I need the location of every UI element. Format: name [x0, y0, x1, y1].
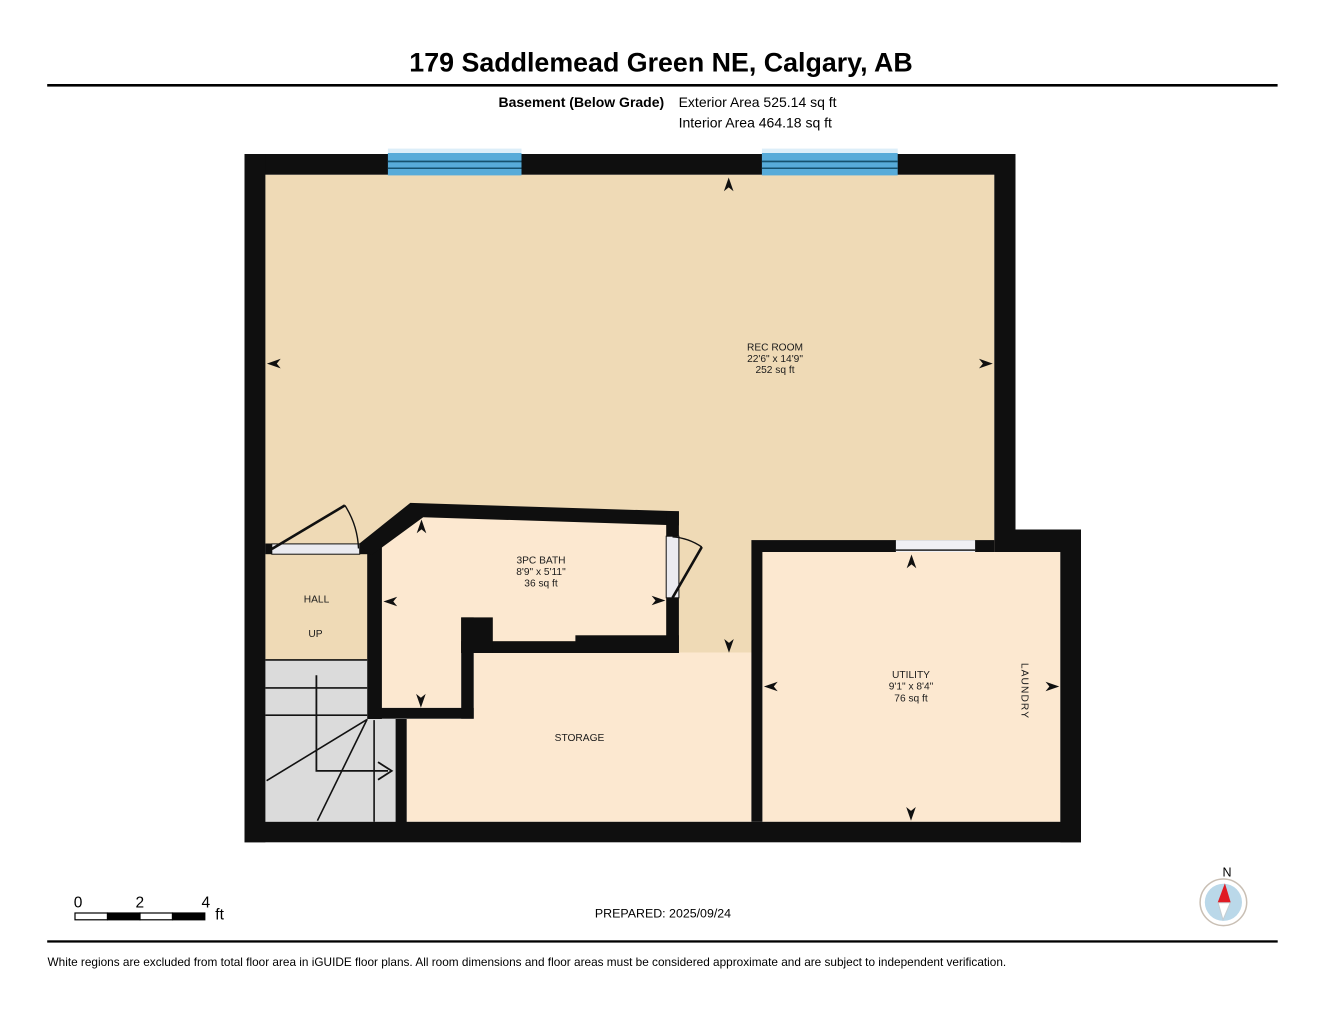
svg-text:PREPARED: 2025/09/24: PREPARED: 2025/09/24	[595, 907, 731, 921]
svg-text:8'9" x 5'11": 8'9" x 5'11"	[516, 567, 566, 578]
svg-text:White regions are excluded fro: White regions are excluded from total fl…	[48, 955, 1007, 969]
svg-text:252 sq ft: 252 sq ft	[755, 365, 794, 376]
svg-text:Basement (Below Grade): Basement (Below Grade)	[498, 94, 664, 110]
svg-text:9'1" x 8'4": 9'1" x 8'4"	[889, 682, 934, 693]
svg-text:22'6" x 14'9": 22'6" x 14'9"	[747, 354, 803, 365]
svg-text:0: 0	[74, 895, 83, 912]
svg-text:UTILITY: UTILITY	[892, 670, 930, 681]
svg-text:4: 4	[201, 895, 210, 912]
svg-text:N: N	[1222, 865, 1231, 879]
svg-text:STORAGE: STORAGE	[555, 733, 605, 744]
svg-text:LAUNDRY: LAUNDRY	[1019, 663, 1030, 719]
svg-text:Interior Area 464.18 sq ft: Interior Area 464.18 sq ft	[679, 115, 832, 131]
svg-text:ft: ft	[215, 907, 224, 924]
svg-text:2: 2	[135, 895, 144, 912]
svg-text:3PC BATH: 3PC BATH	[516, 556, 565, 567]
svg-text:UP: UP	[308, 629, 322, 640]
svg-text:HALL: HALL	[304, 595, 330, 606]
svg-text:REC ROOM: REC ROOM	[747, 342, 803, 353]
svg-text:36 sq ft: 36 sq ft	[524, 579, 558, 590]
svg-text:76 sq ft: 76 sq ft	[894, 694, 928, 705]
svg-text:Exterior Area 525.14 sq ft: Exterior Area 525.14 sq ft	[679, 94, 837, 110]
svg-text:179 Saddlemead Green NE, Calga: 179 Saddlemead Green NE, Calgary, AB	[409, 48, 912, 78]
